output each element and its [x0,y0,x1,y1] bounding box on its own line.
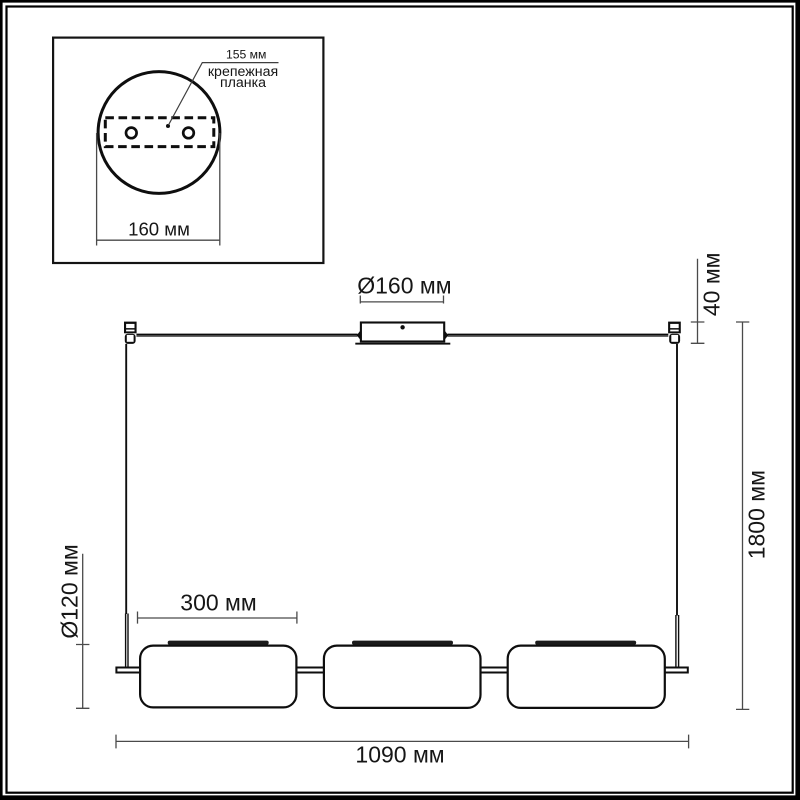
svg-text:планка: планка [220,75,266,91]
svg-text:40 мм: 40 мм [699,252,725,316]
svg-text:160 мм: 160 мм [128,219,190,240]
svg-text:155 мм: 155 мм [226,47,266,61]
svg-text:1090 мм: 1090 мм [355,742,444,768]
svg-text:300 мм: 300 мм [180,589,256,615]
svg-text:Ø120 мм: Ø120 мм [57,544,83,638]
svg-text:Ø160 мм: Ø160 мм [357,272,451,298]
svg-text:1800 мм: 1800 мм [744,470,770,559]
